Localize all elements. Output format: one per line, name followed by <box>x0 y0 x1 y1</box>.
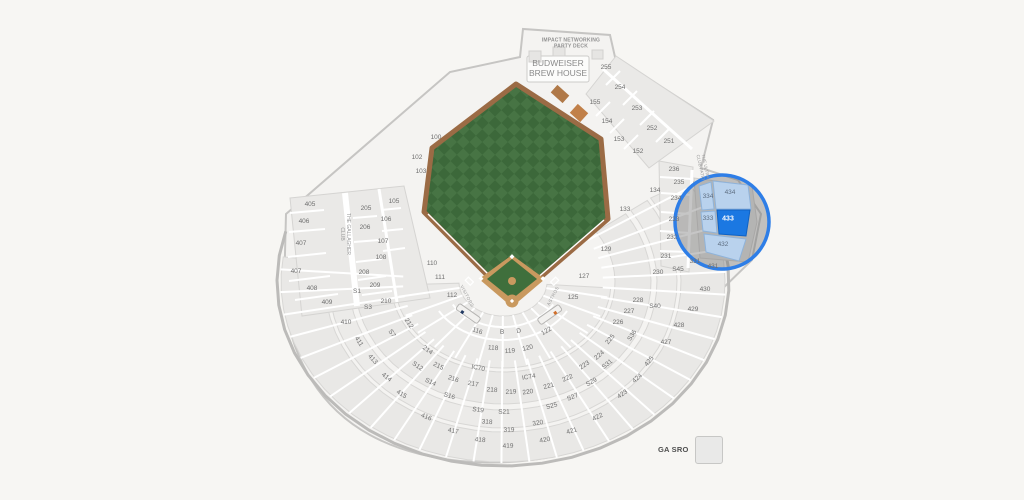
section-226[interactable]: 226 <box>613 320 624 327</box>
section-334[interactable]: 334 <box>703 194 714 201</box>
section-216[interactable]: 216 <box>447 375 459 385</box>
section-B[interactable]: B <box>500 330 504 337</box>
section-IC74[interactable]: IC74 <box>522 374 537 383</box>
section-118[interactable]: 118 <box>488 345 499 352</box>
section-413[interactable]: 413 <box>366 354 378 366</box>
section-234[interactable]: 234 <box>671 196 682 203</box>
section-S14[interactable]: S14 <box>423 378 436 389</box>
section-S36[interactable]: S36 <box>627 329 639 342</box>
section-424[interactable]: 424 <box>632 373 644 385</box>
section-134[interactable]: 134 <box>650 188 661 195</box>
section-225[interactable]: 225 <box>605 334 617 347</box>
section-418[interactable]: 418 <box>474 437 485 444</box>
seating-map: 1001021031051061071081101111121161181191… <box>0 0 1024 500</box>
section-423[interactable]: 423 <box>617 389 630 401</box>
section-233[interactable]: 233 <box>669 217 680 224</box>
section-218[interactable]: 218 <box>486 387 497 394</box>
section-231[interactable]: 231 <box>661 254 672 261</box>
section-427[interactable]: 427 <box>661 340 672 347</box>
section-227[interactable]: 227 <box>624 309 635 316</box>
section-255[interactable]: 255 <box>601 65 612 72</box>
section-235[interactable]: 235 <box>674 180 685 187</box>
section-S31[interactable]: S31 <box>601 359 614 371</box>
section-318[interactable]: 318 <box>481 419 492 426</box>
section-414[interactable]: 414 <box>380 372 393 384</box>
section-217[interactable]: 217 <box>467 381 479 389</box>
section-420[interactable]: 420 <box>539 437 551 445</box>
section-417[interactable]: 417 <box>447 428 459 437</box>
section-319[interactable]: 319 <box>503 428 514 435</box>
section-331[interactable]: 331 <box>690 259 701 266</box>
section-102[interactable]: 102 <box>412 155 423 162</box>
section-S45[interactable]: S45 <box>672 267 684 274</box>
section-labels: 1001021031051061071081101111121161181191… <box>0 0 1024 500</box>
section-431[interactable]: 431 <box>708 264 719 271</box>
section-222[interactable]: 222 <box>562 374 575 384</box>
section-230[interactable]: 230 <box>653 270 664 277</box>
section-411[interactable]: 411 <box>352 336 363 348</box>
section-103[interactable]: 103 <box>416 169 427 176</box>
section-206[interactable]: 206 <box>360 225 371 232</box>
section-133[interactable]: 133 <box>620 207 631 214</box>
section-409[interactable]: 409 <box>322 300 333 307</box>
section-111[interactable]: 111 <box>435 275 445 282</box>
section-224[interactable]: 224 <box>594 350 606 362</box>
section-236[interactable]: 236 <box>669 167 680 174</box>
section-419[interactable]: 419 <box>503 444 514 451</box>
section-119[interactable]: 119 <box>505 348 516 355</box>
section-421[interactable]: 421 <box>566 427 578 436</box>
section-415[interactable]: 415 <box>395 389 408 400</box>
section-S27[interactable]: S27 <box>566 393 579 403</box>
section-214[interactable]: 214 <box>421 345 434 357</box>
section-112[interactable]: 112 <box>447 293 457 300</box>
section-433[interactable]: 433 <box>722 216 734 223</box>
section-S3[interactable]: S3 <box>364 305 372 312</box>
ga-sro-legend-swatch <box>695 436 723 464</box>
section-208[interactable]: 208 <box>359 270 370 277</box>
section-212[interactable]: 212 <box>402 318 413 331</box>
section-232[interactable]: 232 <box>667 235 678 242</box>
section-215[interactable]: 215 <box>432 362 445 373</box>
section-210[interactable]: 210 <box>381 299 392 306</box>
section-425[interactable]: 425 <box>644 356 656 369</box>
gallagher-club-line1: THE GALLAGHER <box>344 213 350 255</box>
section-407[interactable]: 407 <box>291 269 302 276</box>
section-407[interactable]: 407 <box>296 241 307 248</box>
section-S1[interactable]: S1 <box>353 289 361 296</box>
section-428[interactable]: 428 <box>674 323 685 330</box>
section-219[interactable]: 219 <box>505 389 516 396</box>
section-S21[interactable]: S21 <box>498 410 510 417</box>
section-S25[interactable]: S25 <box>546 402 559 411</box>
section-107[interactable]: 107 <box>378 239 389 246</box>
section-IC70[interactable]: IC70 <box>471 365 486 374</box>
section-106[interactable]: 106 <box>381 217 392 224</box>
ga-sro-legend-label: GA SRO <box>658 445 689 454</box>
section-434[interactable]: 434 <box>725 190 736 197</box>
section-429[interactable]: 429 <box>688 307 699 314</box>
section-153[interactable]: 153 <box>614 137 625 144</box>
section-252[interactable]: 252 <box>647 126 658 133</box>
section-223[interactable]: 223 <box>579 360 592 371</box>
section-129[interactable]: 129 <box>601 247 612 254</box>
section-408[interactable]: 408 <box>307 286 318 293</box>
section-100[interactable]: 100 <box>431 135 442 142</box>
section-127[interactable]: 127 <box>579 274 590 281</box>
section-116[interactable]: 116 <box>471 327 483 337</box>
section-220[interactable]: 220 <box>522 389 534 397</box>
section-320[interactable]: 320 <box>532 420 544 428</box>
section-105[interactable]: 105 <box>389 199 400 206</box>
section-120[interactable]: 120 <box>522 345 534 354</box>
section-251[interactable]: 251 <box>664 139 675 146</box>
section-406[interactable]: 406 <box>299 219 310 226</box>
section-D[interactable]: D <box>516 328 522 335</box>
section-125[interactable]: 125 <box>568 295 579 302</box>
section-110[interactable]: 110 <box>427 261 437 268</box>
section-S19[interactable]: S19 <box>472 407 484 415</box>
section-416[interactable]: 416 <box>420 413 432 423</box>
section-422[interactable]: 422 <box>592 413 605 423</box>
section-122[interactable]: 122 <box>541 326 554 337</box>
section-S12[interactable]: S12 <box>410 361 423 373</box>
party-deck-label: IMPACT NETWORKING PARTY DECK <box>542 38 600 50</box>
section-205[interactable]: 205 <box>361 206 372 213</box>
section-333[interactable]: 333 <box>703 216 714 223</box>
section-209[interactable]: 209 <box>370 283 381 290</box>
section-430[interactable]: 430 <box>700 287 711 294</box>
section-154[interactable]: 154 <box>602 119 613 126</box>
section-221[interactable]: 221 <box>543 382 555 391</box>
section-254[interactable]: 254 <box>615 85 626 92</box>
section-253[interactable]: 253 <box>632 106 643 113</box>
section-S7[interactable]: S7 <box>386 329 396 339</box>
section-432[interactable]: 432 <box>718 242 729 249</box>
section-152[interactable]: 152 <box>633 149 644 156</box>
section-228[interactable]: 228 <box>633 298 644 305</box>
section-405[interactable]: 405 <box>305 202 316 209</box>
section-155[interactable]: 155 <box>590 100 601 107</box>
party-deck-line2: PARTY DECK <box>542 44 600 50</box>
section-S16[interactable]: S16 <box>443 392 456 402</box>
section-S40[interactable]: S40 <box>649 304 661 311</box>
section-410[interactable]: 410 <box>341 320 352 327</box>
brew-house-line2: BREW HOUSE <box>529 69 587 79</box>
section-108[interactable]: 108 <box>376 255 387 262</box>
brew-house-label: BUDWEISER BREW HOUSE <box>529 59 587 79</box>
section-S29[interactable]: S29 <box>585 377 598 388</box>
gallagher-club-label: THE GALLAGHER CLUB <box>338 213 350 255</box>
